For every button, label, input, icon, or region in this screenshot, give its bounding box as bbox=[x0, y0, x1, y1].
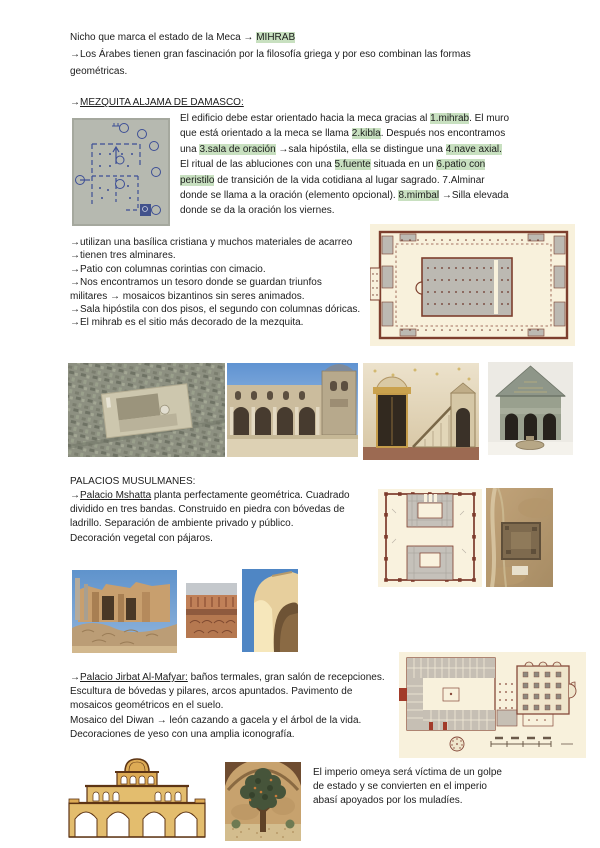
tree-of-life-mosaic bbox=[225, 762, 301, 841]
damascus-heading: →MEZQUITA ALJAMA DE DAMASCO: bbox=[70, 96, 244, 109]
carving-photo bbox=[186, 583, 237, 638]
damascus-paragraph: El edificio debe estar orientado hacia l… bbox=[180, 111, 509, 219]
damascus-bullet-list: →utilizan una basílica cristiana y mucho… bbox=[70, 236, 360, 330]
bullet-item: →Patio con columnas corintias con cimaci… bbox=[70, 263, 360, 276]
document-page: Nicho que marca el estado de la Meca → M… bbox=[0, 0, 600, 848]
closing-paragraph: El imperio omeya será víctima de un golp… bbox=[313, 766, 502, 809]
palaces-heading: PALACIOS MUSULMANES: bbox=[70, 475, 195, 488]
jirbat-plan bbox=[399, 652, 586, 758]
bullet-item: →Nos encontramos un tesoro donde se guar… bbox=[70, 276, 360, 303]
damascus-facade-photo bbox=[488, 362, 573, 455]
damascus-aerial-photo bbox=[68, 363, 225, 457]
ruins-photo bbox=[72, 570, 177, 653]
arch-photo bbox=[242, 569, 298, 652]
mshatta-aerial-photo bbox=[486, 488, 553, 587]
damascus-courtyard-photo bbox=[227, 363, 358, 457]
facade-elevation-drawing bbox=[67, 757, 207, 840]
hand-sketch-plan bbox=[72, 118, 170, 226]
mshatta-paragraph: →Palacio Mshatta planta perfectamente ge… bbox=[70, 489, 350, 546]
jirbat-paragraph: →Palacio Jirbat Al-Mafyar: baños termale… bbox=[70, 671, 385, 742]
bullet-item: →tienen tres alminares. bbox=[70, 249, 360, 262]
intro-paragraph: →Los Árabes tienen gran fascinación por … bbox=[70, 47, 471, 80]
intro-line-mihrab: Nicho que marca el estado de la Meca → M… bbox=[70, 31, 295, 44]
bullet-item: →utilizan una basílica cristiana y mucho… bbox=[70, 236, 360, 249]
mshatta-plan bbox=[378, 489, 482, 587]
bullet-item: →El mihrab es el sitio más decorado de l… bbox=[70, 316, 360, 329]
bullet-item: →Sala hipóstila con dos pisos, el segund… bbox=[70, 303, 360, 316]
damascus-minbar-photo bbox=[363, 363, 479, 460]
damascus-mosque-plan bbox=[370, 224, 575, 346]
